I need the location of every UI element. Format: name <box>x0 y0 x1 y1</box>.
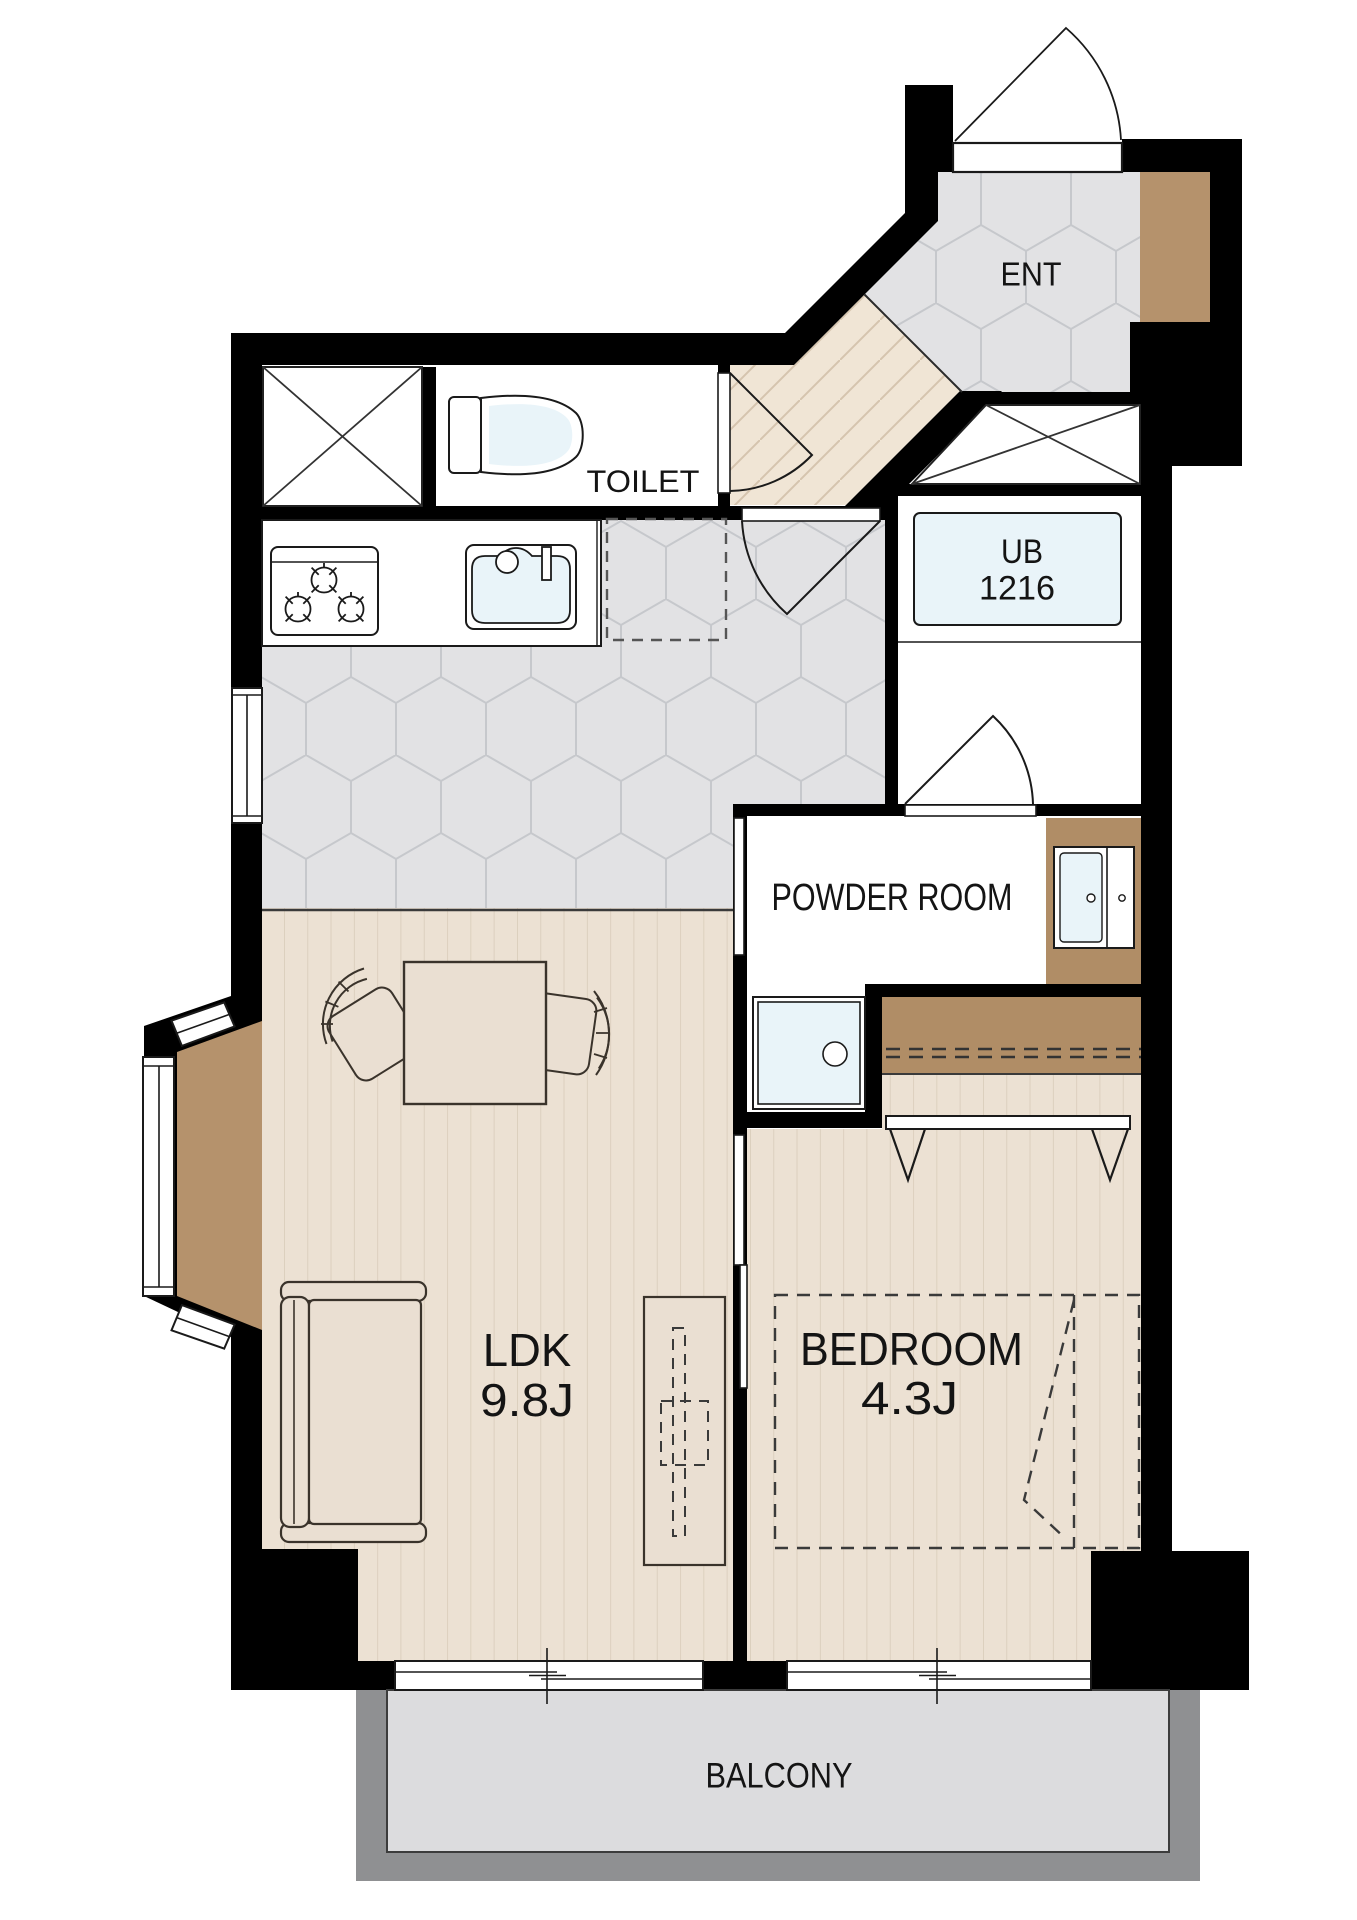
svg-text:4.3J: 4.3J <box>861 1372 958 1424</box>
svg-text:9.8J: 9.8J <box>480 1374 574 1426</box>
svg-text:1216: 1216 <box>979 570 1055 608</box>
svg-text:BEDROOM: BEDROOM <box>800 1323 1023 1375</box>
svg-text:POWDER ROOM: POWDER ROOM <box>772 877 1013 919</box>
svg-text:TOILET: TOILET <box>587 463 700 499</box>
svg-text:UB: UB <box>1001 533 1043 571</box>
svg-text:BALCONY: BALCONY <box>706 1757 853 1796</box>
svg-text:LDK: LDK <box>483 1324 572 1376</box>
svg-text:ENT: ENT <box>1001 256 1062 293</box>
